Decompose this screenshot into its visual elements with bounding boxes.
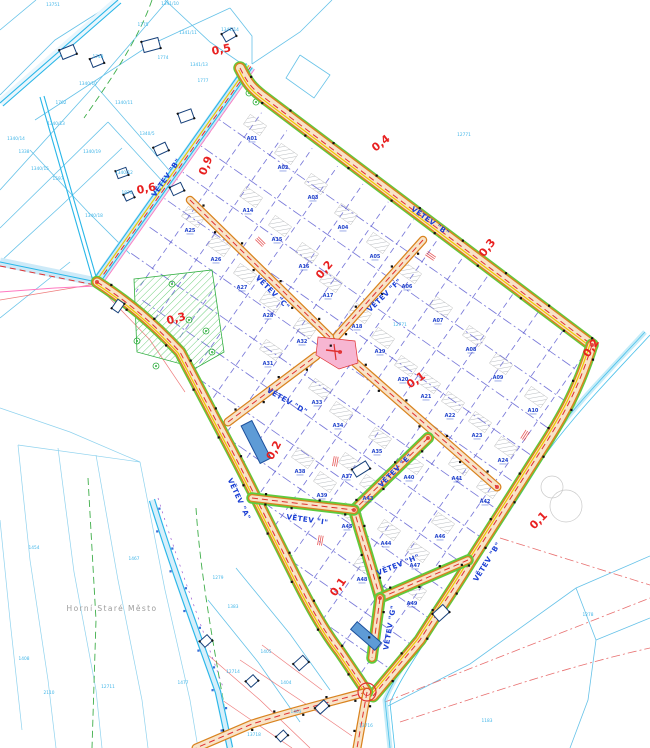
survey-dot (446, 435, 448, 437)
parcel-label: 1477 (178, 680, 189, 686)
survey-dot (190, 360, 192, 362)
polyline-shape (0, 408, 140, 462)
survey-dot (462, 240, 464, 242)
plot-area-text (468, 353, 475, 354)
survey-dot (570, 409, 572, 411)
plot-area-text (280, 171, 287, 172)
polyline-shape (58, 448, 102, 748)
plot-area-text (245, 214, 252, 215)
parcel-label: 12714 (226, 669, 240, 675)
circle-shape (211, 351, 213, 353)
plot-label: A45 (342, 524, 353, 530)
survey-dot (169, 570, 171, 572)
parcel-label: 1748 (93, 54, 104, 60)
parcel-label: 1762 (56, 100, 67, 106)
parcel-label: 1467 (129, 556, 140, 562)
cadastral-map: 137511341/101341/111341/14177517741341/1… (0, 0, 650, 748)
plot-area-text (404, 290, 411, 291)
parcel-label: 12771 (393, 322, 407, 328)
survey-dot (368, 636, 370, 638)
survey-dot (484, 547, 486, 549)
plot-label: A43 (363, 496, 374, 502)
plot-area-text (530, 414, 537, 415)
path-shape (500, 538, 650, 585)
plot-label: A15 (272, 237, 283, 243)
parcel-label: 1774 (158, 55, 169, 61)
plot-area-text (297, 475, 304, 476)
plot-label: A39 (317, 493, 328, 499)
plot-label: A05 (370, 254, 381, 260)
survey-dot (432, 609, 434, 611)
building (176, 108, 195, 125)
plot-area-text (344, 530, 351, 531)
chainage-marker: 0,1 (527, 509, 550, 532)
survey-dot (355, 499, 357, 501)
survey-dot (202, 204, 204, 206)
plot-area-text (500, 464, 507, 465)
survey-dot (273, 710, 275, 712)
survey-dot (519, 472, 521, 474)
survey-dot (365, 364, 367, 366)
plot-area-text (265, 319, 272, 320)
plot-area-text (274, 243, 281, 244)
plot-label: A38 (295, 469, 306, 475)
plot-area-text (310, 201, 317, 202)
parcel-label: 1777 (198, 78, 209, 84)
plot-label: A25 (185, 228, 196, 234)
junction-mark (95, 280, 99, 284)
rect-shape (246, 675, 259, 688)
survey-dot (291, 581, 293, 583)
plot-label: A32 (297, 339, 308, 345)
plot-area-text (187, 234, 194, 235)
parcel-label: 12711 (101, 684, 115, 690)
path-shape (196, 508, 232, 748)
plot-label: A01 (247, 136, 258, 142)
parcel-label: 1340/10 (79, 81, 97, 87)
plot-area-text (454, 482, 461, 483)
plot-area-text (314, 406, 321, 407)
parcel-label: 13718 (247, 732, 261, 738)
survey-dot (156, 530, 158, 532)
survey-dot (110, 284, 112, 286)
survey-dot (548, 305, 550, 307)
survey-dot (185, 587, 187, 589)
plot-label: A07 (433, 318, 444, 324)
parcel-label: 13751 (46, 2, 60, 8)
polyline-shape (0, 520, 22, 730)
parcel-label: 1405 (261, 649, 272, 655)
parcel-label: 1279 (213, 575, 224, 581)
circle-shape (550, 490, 582, 522)
survey-dot (513, 501, 515, 503)
survey-dot (265, 493, 267, 495)
parcel-label: 1340/13 (47, 121, 65, 127)
plot-label: A18 (352, 324, 363, 330)
survey-dot (241, 242, 243, 244)
plot-area-text (435, 324, 442, 325)
chainage-marker: 0,4 (369, 132, 393, 154)
circle-shape (205, 330, 207, 332)
plot-area-text (354, 330, 361, 331)
survey-dot (242, 484, 244, 486)
plot-label: A10 (528, 408, 539, 414)
polyline-shape (0, 148, 122, 262)
plot-label: A44 (381, 541, 392, 547)
junction-mark (378, 596, 382, 600)
parcel-label: 1597 (53, 176, 64, 182)
plot-label: A17 (323, 293, 334, 299)
circle-shape (155, 365, 157, 367)
cadastral-plan-stage: 137511341/101341/111341/14177517741341/1… (0, 0, 650, 748)
plot-area-text (213, 263, 220, 264)
survey-dot (317, 629, 319, 631)
parcel-label: 1775 (138, 22, 149, 28)
plot-area-text (482, 505, 489, 506)
plot-area-text (340, 231, 347, 232)
survey-dot (251, 729, 253, 731)
survey-dot (306, 369, 308, 371)
plot-area-text (412, 569, 419, 570)
parcel-label: 1341/14 (221, 27, 239, 33)
survey-dot (361, 554, 363, 556)
plot-area-text (474, 439, 481, 440)
plot-label: A14 (243, 208, 254, 214)
rect-shape (141, 37, 160, 52)
junction-mark (352, 508, 356, 512)
parcel-label: 1341/10 (161, 1, 179, 7)
survey-dot (290, 507, 292, 509)
building (244, 673, 260, 688)
plot-label: A48 (357, 577, 368, 583)
survey-dot (505, 272, 507, 274)
survey-dot (378, 390, 380, 392)
survey-dot (153, 318, 155, 320)
survey-dot (439, 565, 441, 567)
survey-dot (389, 586, 391, 588)
parcel-label: 1340/14 (7, 136, 25, 142)
survey-dot (487, 470, 489, 472)
path-shape (150, 501, 228, 748)
survey-dot (183, 610, 185, 612)
parcel-label: 1408 (19, 656, 30, 662)
circle-shape (255, 101, 257, 103)
junction-mark (426, 436, 430, 440)
survey-dot (363, 525, 365, 527)
circle-shape (136, 340, 138, 342)
survey-dot (426, 638, 428, 640)
plot-label: A31 (263, 361, 274, 367)
plot-label: A33 (312, 400, 323, 406)
survey-dot (417, 253, 419, 255)
survey-dot (240, 455, 242, 457)
plot-label: A09 (493, 375, 504, 381)
plot-area-text (249, 142, 256, 143)
plot-area-text (374, 455, 381, 456)
parcel-label: 1340/12 (115, 170, 133, 176)
survey-dot (304, 135, 306, 137)
survey-dot (302, 714, 304, 716)
survey-dot (405, 399, 407, 401)
survey-dot (332, 142, 334, 144)
parcel-label: 1341/13 (190, 62, 208, 68)
survey-dot (221, 729, 223, 731)
survey-dot (199, 627, 201, 629)
plot-area-text (239, 291, 246, 292)
path-shape (400, 648, 650, 722)
survey-dot (542, 456, 544, 458)
plot-label: A16 (299, 264, 310, 270)
parcel-label: 1183 (482, 718, 493, 724)
survey-dot (477, 265, 479, 267)
plot-area-text (423, 400, 430, 401)
survey-dot (214, 231, 216, 233)
plot-label: A42 (480, 499, 491, 505)
survey-dot (264, 503, 266, 505)
plot-area-text (365, 502, 372, 503)
polyline-shape (286, 55, 330, 98)
plot-label: A26 (211, 257, 222, 263)
parcel-label: 2110 (44, 690, 55, 696)
plot-area-text (377, 355, 384, 356)
plot-area-text (409, 607, 416, 608)
chainage-marker: 0,5 (210, 41, 232, 58)
plot-label: A22 (445, 413, 456, 419)
road-existing-left (0, 0, 121, 285)
polyline-shape (570, 588, 596, 748)
survey-dot (278, 376, 280, 378)
parcel-label: 1870 (122, 190, 133, 196)
survey-dot (280, 280, 282, 282)
plot-area-text (335, 429, 342, 430)
survey-dot (572, 380, 574, 382)
parcel-label: 1454 (29, 545, 40, 551)
survey-dot (369, 705, 371, 707)
parcel-label: 1341/11 (179, 30, 197, 36)
polyline-shape (18, 445, 56, 748)
plot-label: A41 (452, 476, 463, 482)
survey-dot (434, 232, 436, 234)
survey-dot (345, 333, 347, 335)
plot-area-text (301, 270, 308, 271)
survey-dot (520, 297, 522, 299)
survey-dot (325, 696, 327, 698)
survey-dot (354, 700, 356, 702)
polyline-shape (18, 445, 140, 462)
survey-dot (347, 673, 349, 675)
survey-dot (211, 689, 213, 691)
polyline-shape (252, 0, 332, 64)
plot-label: A08 (466, 347, 477, 353)
path-shape (88, 478, 96, 748)
plot-area-text (325, 299, 332, 300)
plot-label: A04 (338, 225, 349, 231)
plot-area-text (437, 540, 444, 541)
parcel-label: 1404 (281, 680, 292, 686)
survey-dot (341, 645, 343, 647)
plot-area-text (299, 345, 306, 346)
plot-label: A02 (278, 165, 289, 171)
survey-dot (390, 200, 392, 202)
survey-dot (215, 407, 217, 409)
survey-dot (330, 345, 332, 347)
parcel-label: 1278 (583, 612, 594, 618)
rect-shape (178, 109, 195, 123)
parcel-label: 1340/11 (115, 100, 133, 106)
survey-dot (418, 425, 420, 427)
survey-dot (225, 707, 227, 709)
plot-label: A06 (402, 284, 413, 290)
survey-dot (391, 265, 393, 267)
survey-dot (592, 359, 594, 361)
survey-dot (392, 680, 394, 682)
survey-dot (421, 450, 423, 452)
survey-dot (234, 408, 236, 410)
plot-label: A34 (333, 423, 344, 429)
circle-shape (171, 283, 173, 285)
survey-dot (355, 306, 357, 308)
plot-area-text (265, 367, 272, 368)
survey-dot (289, 109, 291, 111)
plot-area-text (383, 547, 390, 548)
building (152, 141, 170, 157)
parcel-label: 1403 (291, 709, 302, 715)
survey-dot (547, 427, 549, 429)
plot-area-text (447, 419, 454, 420)
survey-dot (126, 309, 128, 311)
rect-shape (153, 142, 169, 156)
circle-shape (188, 319, 190, 321)
survey-dot (313, 600, 315, 602)
plot-label: A28 (263, 313, 274, 319)
plot-label: A49 (407, 601, 418, 607)
place-name-label: Horní Staré Město (67, 604, 158, 613)
survey-dot (376, 175, 378, 177)
survey-dot (197, 650, 199, 652)
plot-label: A35 (372, 449, 383, 455)
plot-area-text (359, 583, 366, 584)
circle-shape (541, 476, 563, 498)
plot-area-text (372, 260, 379, 261)
survey-dot (158, 508, 160, 510)
survey-dot (288, 552, 290, 554)
parcel-label: 13716 (359, 723, 373, 729)
plot-label: A40 (404, 475, 415, 481)
polyline-shape (0, 0, 36, 30)
rect-shape (276, 730, 288, 742)
survey-dot (319, 499, 321, 501)
survey-dot (261, 102, 263, 104)
parcel-label: 1340/15 (31, 166, 49, 172)
survey-dot (401, 652, 403, 654)
survey-dot (291, 307, 293, 309)
polyline-shape (96, 455, 148, 748)
plot-area-text (344, 480, 351, 481)
polyline-shape (596, 618, 650, 640)
survey-dot (213, 666, 215, 668)
survey-dot (250, 76, 252, 78)
survey-dot (318, 318, 320, 320)
plot-label: A23 (472, 433, 483, 439)
parcel-label: 12771 (457, 132, 471, 138)
survey-dot (192, 389, 194, 391)
survey-dot (171, 547, 173, 549)
plot-area-text (495, 381, 502, 382)
junction-mark (338, 350, 342, 354)
plot-area-text (406, 481, 413, 482)
survey-dot (383, 611, 385, 613)
survey-dot (456, 592, 458, 594)
survey-dot (347, 167, 349, 169)
parcel-label: 1383 (228, 604, 239, 610)
survey-dot (253, 269, 255, 271)
plot-label: A46 (435, 534, 446, 540)
parcel-label: 1340/5 (139, 131, 154, 137)
survey-dot (468, 564, 470, 566)
road-existing-sw (150, 498, 233, 748)
plot-label: A03 (308, 195, 319, 201)
survey-dot (344, 513, 346, 515)
survey-dot (263, 401, 265, 403)
plot-label: A19 (375, 349, 386, 355)
parcel-label: 1340/18 (85, 213, 103, 219)
survey-dot (267, 532, 269, 534)
survey-dot (218, 436, 220, 438)
plot-label: A37 (342, 474, 353, 480)
junction-mark (495, 485, 499, 489)
plot-label: A27 (237, 285, 248, 291)
survey-dot (418, 586, 420, 588)
survey-dot (490, 518, 492, 520)
plot-area-text (319, 499, 326, 500)
parcel-label: 1340/19 (83, 149, 101, 155)
building (275, 729, 290, 744)
parcel-label: 1338 (19, 149, 30, 155)
building (140, 36, 162, 53)
plot-label: A21 (421, 394, 432, 400)
polyline-shape (0, 286, 96, 292)
survey-dot (459, 461, 461, 463)
survey-dot (353, 730, 355, 732)
survey-dot (461, 564, 463, 566)
plot-label: A24 (498, 458, 509, 464)
survey-dot (165, 344, 167, 346)
path-shape (158, 498, 224, 690)
survey-dot (563, 330, 565, 332)
